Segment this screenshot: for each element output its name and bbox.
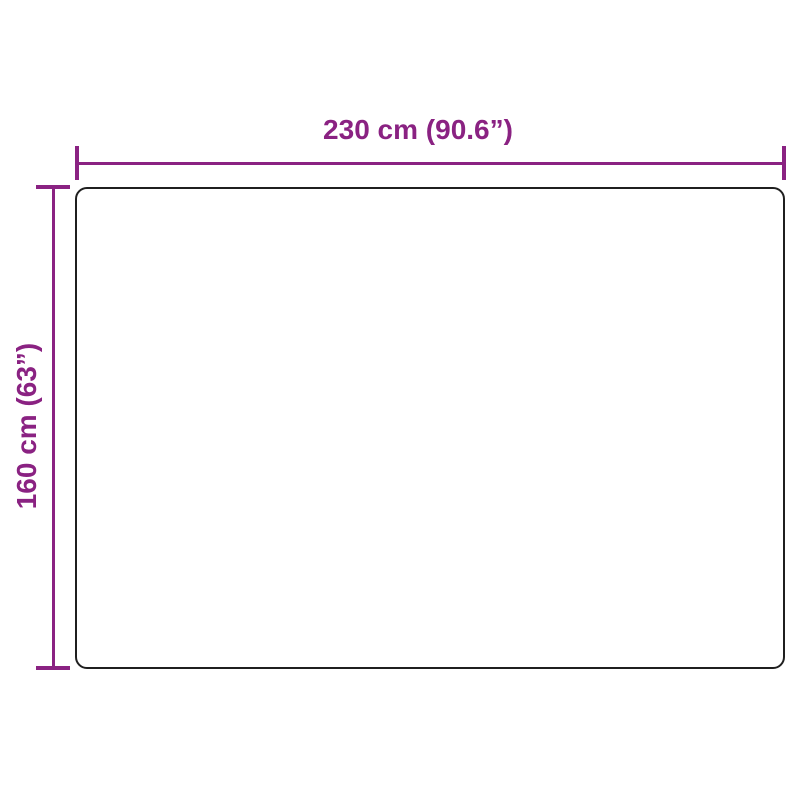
width-dimension-line bbox=[76, 162, 784, 165]
product-outline bbox=[75, 187, 785, 669]
width-dimension-cap-left bbox=[75, 146, 79, 180]
width-dimension-label: 230 cm (90.6”) bbox=[268, 114, 568, 146]
height-dimension-line bbox=[52, 188, 55, 668]
dimension-diagram: 230 cm (90.6”) 160 cm (63”) bbox=[0, 0, 800, 800]
height-dimension-cap-bottom bbox=[36, 666, 70, 670]
height-dimension-cap-top bbox=[36, 185, 70, 189]
height-dimension-label: 160 cm (63”) bbox=[11, 276, 43, 576]
width-dimension-cap-right bbox=[782, 146, 786, 180]
